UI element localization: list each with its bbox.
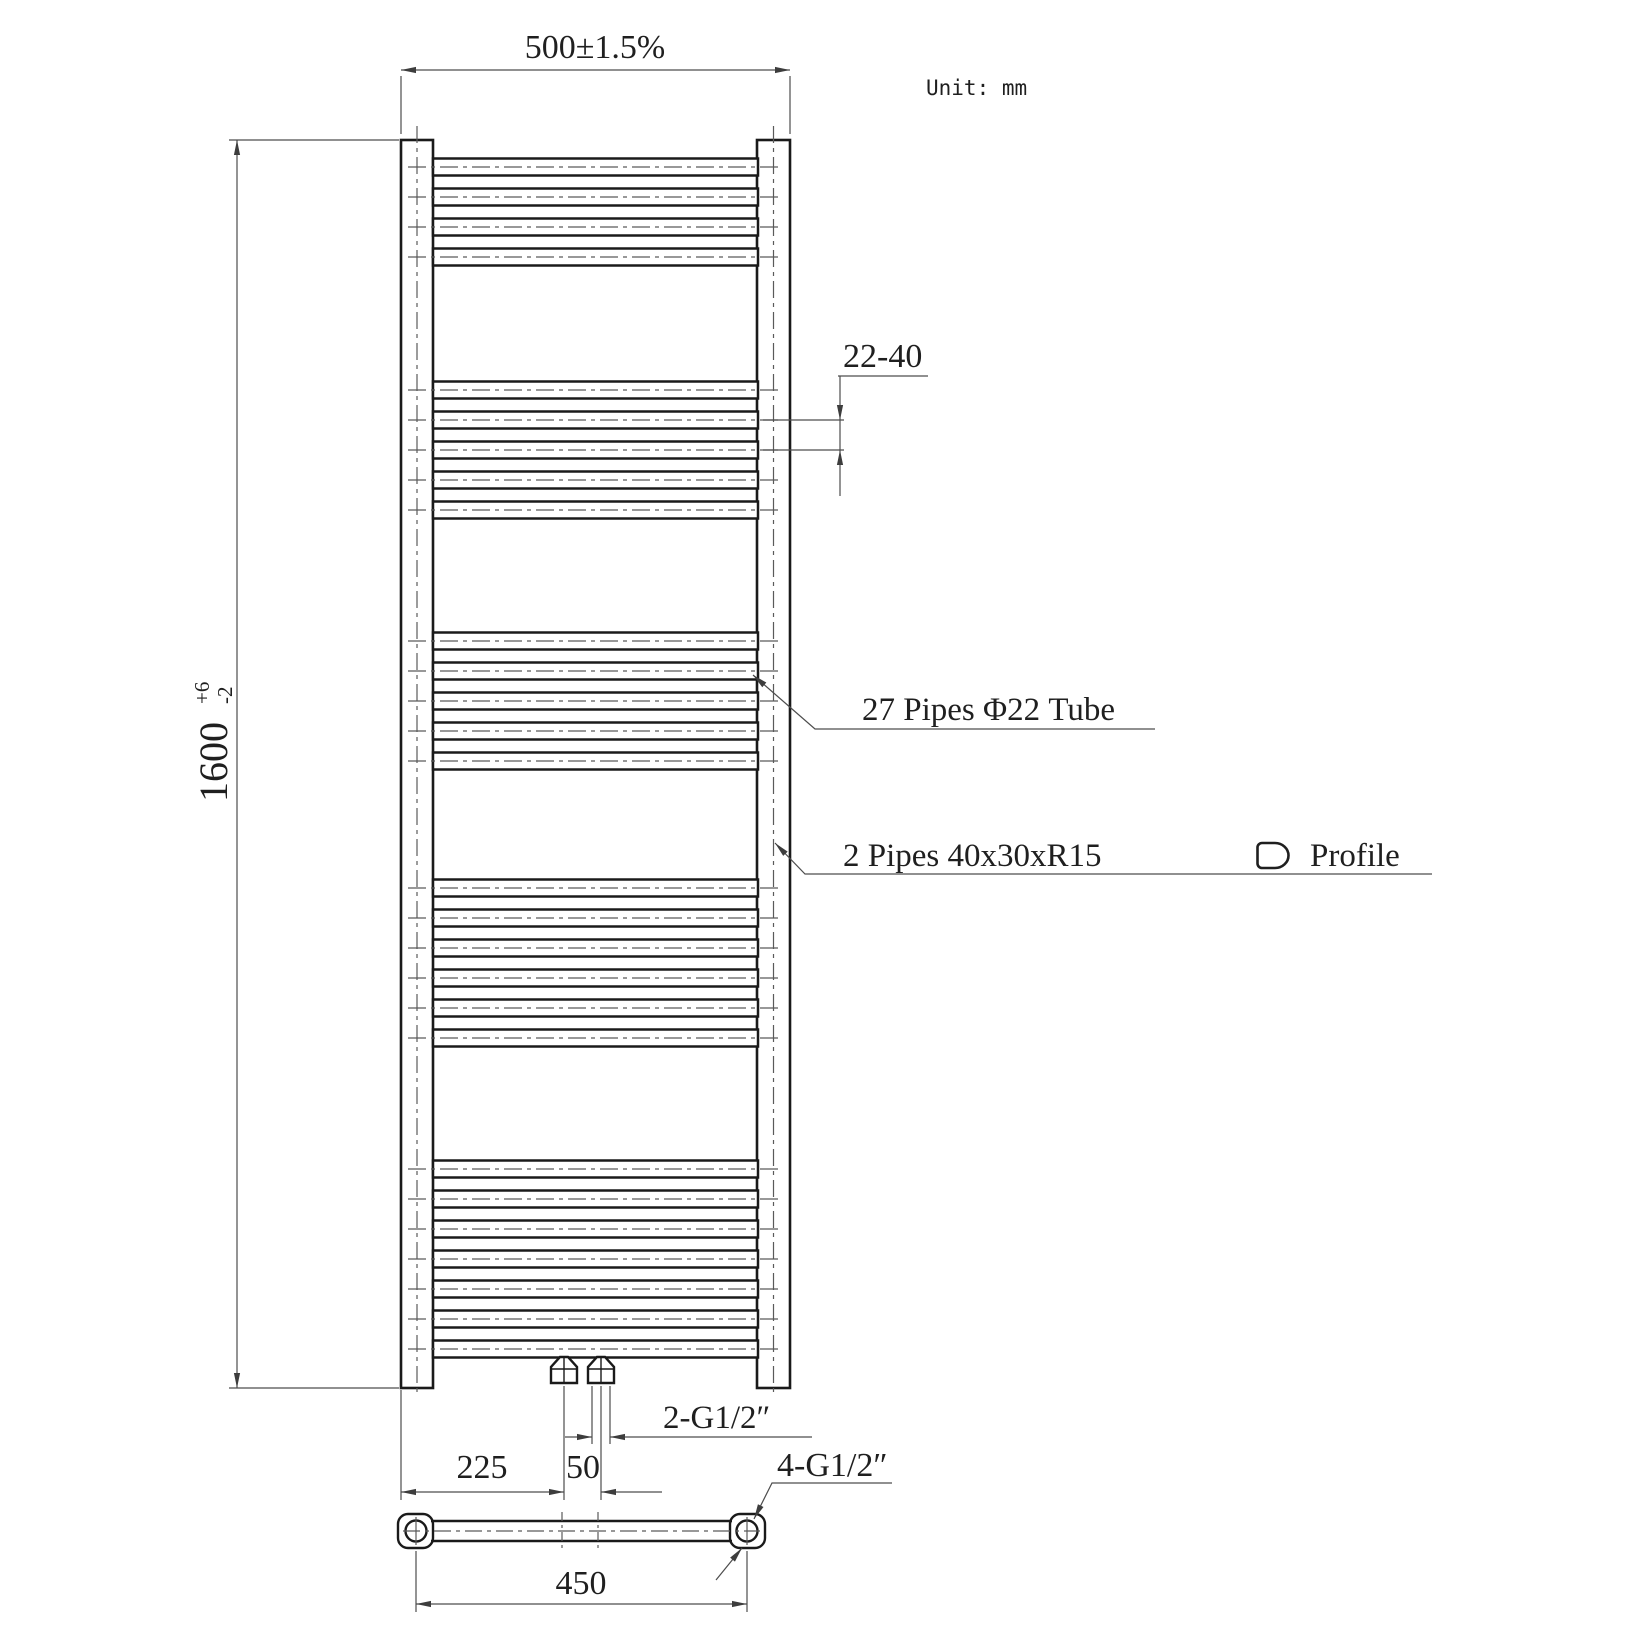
pipe-gap-label: 22-40 [843, 338, 922, 375]
technical-drawing: 500±1.5% Unit: mm 1600 +6 -2 22-40 27 Pi… [0, 0, 1640, 1640]
valve-spacing-label: 50 [566, 1449, 600, 1486]
dimensions [229, 70, 1432, 1612]
width-dimension-label: 500±1.5% [525, 29, 665, 66]
height-value: 1600 [191, 722, 236, 802]
rails-note: 2 Pipes 40x30xR15 [843, 838, 1102, 874]
profile-label: Profile [1310, 838, 1400, 874]
offset-label: 225 [457, 1449, 508, 1486]
bottom-connections-label: 2-G1/2″ [663, 1400, 770, 1436]
bottom-valves [551, 1357, 614, 1383]
pipe-gap-dimension [763, 376, 928, 496]
profile-shape-icon [1258, 843, 1289, 868]
front-view [401, 126, 790, 1396]
unit-note: Unit: mm [926, 76, 1027, 100]
height-tolerance-plus: +6 [190, 682, 214, 704]
height-dimension [229, 140, 399, 1388]
bottom-view [398, 1512, 765, 1550]
side-connections-label: 4-G1/2″ [777, 1447, 887, 1484]
pipe-array [408, 159, 783, 1358]
side-connection-leader-2 [716, 1548, 742, 1580]
width-dimension [401, 70, 790, 134]
height-tolerance-minus: -2 [213, 687, 237, 705]
hole-centers-label: 450 [556, 1565, 607, 1602]
height-dimension-label: 1600 +6 -2 [190, 682, 237, 802]
pipes-note: 27 Pipes Φ22 Tube [862, 692, 1115, 728]
drawing-sheet: 500±1.5% Unit: mm 1600 +6 -2 22-40 27 Pi… [0, 0, 1640, 1640]
side-connection-leader [754, 1483, 892, 1519]
